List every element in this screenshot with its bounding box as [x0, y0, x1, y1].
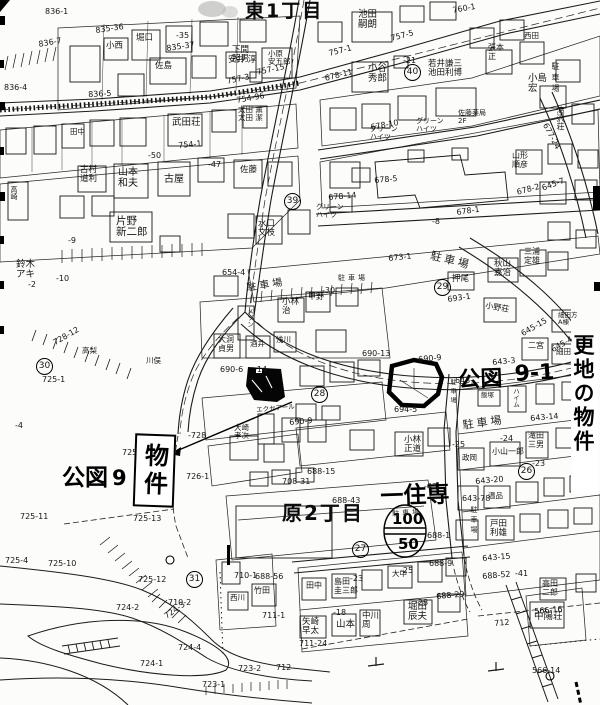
parking-label: 駐車場: [338, 275, 368, 283]
name-label: 川俣: [146, 357, 161, 365]
handwritten-note: 公図: [62, 466, 108, 491]
parcel-number-label: 678-11: [324, 68, 354, 83]
name-label: 飯塚: [481, 392, 494, 399]
parcel-number-label: 643-3: [492, 357, 516, 368]
parcel-number-label: 725-11: [20, 513, 48, 522]
parcel-number-label: 757-1: [328, 44, 353, 58]
parcel-number-label: 678-1: [456, 206, 480, 218]
name-label: 小林 治: [282, 298, 299, 316]
circled-number: 30: [36, 358, 53, 375]
name-label: 小西: [106, 42, 123, 51]
parcel-number-label: -18: [333, 609, 346, 618]
parcel-number-label: -43: [424, 483, 437, 492]
parcel-number-label: 643-14: [530, 413, 559, 424]
parcel-number-label: 688-1: [427, 532, 450, 541]
circled-number: 31: [186, 571, 203, 588]
parcel-number-label: 645-15: [520, 317, 549, 339]
parcel-number-label: 724-1: [140, 660, 163, 669]
name-label: エクセアール: [256, 404, 295, 414]
name-label: ハイム: [512, 388, 519, 408]
parcel-number-label: 723-1: [202, 681, 225, 690]
name-label: 滝沢荘: [556, 106, 564, 130]
name-label: 二宮: [528, 342, 544, 351]
property-box-text: 物件: [136, 442, 173, 499]
parcel-number-label: 708-31: [282, 478, 310, 487]
name-label: 田中: [70, 128, 85, 136]
parcel-number-label: -728: [188, 432, 206, 441]
name-label: 堀田 辰夫: [408, 602, 427, 623]
name-label: 高田 二郎: [542, 580, 558, 597]
name-label: 小谷 秀郎: [368, 64, 387, 85]
parcel-number-label: 654-4: [222, 269, 245, 278]
name-label: 島田 圭三郎: [334, 578, 358, 595]
name-label: 佐藤薬局 2F: [458, 110, 486, 125]
parcel-number-label: 725-13: [133, 515, 161, 524]
name-label: 鈴木 アキ: [16, 260, 35, 281]
parcel-number-label: 690-9: [289, 417, 313, 428]
name-label: 中川 周: [362, 612, 379, 630]
map-labels: 東1丁目原2丁目公図9 -公図9-1一住専10050駐車場駐車場駐車場駐車場駐車…: [0, 0, 600, 705]
parcel-number-label: -41: [515, 570, 528, 579]
parcel-number-label: 712: [494, 619, 510, 629]
margin-note-vacant-lot: 更地の物件: [572, 334, 598, 494]
name-label: 矢崎 早太: [302, 618, 319, 636]
name-label: 竹田: [254, 587, 270, 596]
parcel-number-label: 757-5: [390, 29, 415, 43]
name-label: 山本 和夫: [118, 168, 138, 190]
parcel-number-label: 688-43: [332, 497, 360, 506]
name-label: グリーン ハイツ: [416, 118, 444, 133]
parcel-number-label: 724-4: [178, 644, 201, 653]
parcel-number-label: 836-4: [4, 84, 27, 93]
name-label: 政岡: [462, 454, 477, 462]
name-label: グリーン ハイツ: [316, 204, 344, 219]
parking-label: 駐車場: [246, 278, 286, 295]
parcel-number-label: 725-4: [5, 557, 28, 566]
parcel-number-label: 724-3: [163, 601, 187, 621]
parcel-number-label: 678-2: [516, 183, 541, 197]
parcel-number-label: 690-13: [362, 350, 390, 359]
name-label: 田中: [306, 582, 322, 591]
parcel-number-label: 643-15: [482, 553, 511, 564]
parcel-number-label: 693-1: [447, 293, 471, 305]
name-label: 武田荘: [172, 118, 201, 128]
circled-number: 40: [404, 64, 421, 81]
parcel-number-label: 754-1: [178, 140, 202, 151]
parcel-number-label: 835-36: [95, 23, 124, 35]
parcel-number-label: -25: [452, 441, 465, 450]
parcel-number-label: 757-3: [226, 73, 251, 86]
parcel-number-label: -8: [432, 218, 440, 227]
name-label: 高崎: [10, 186, 17, 200]
parcel-number-label: 688-9: [429, 560, 452, 569]
parcel-number-label: 711-24: [299, 640, 327, 649]
parcel-number-label: 643-20: [475, 476, 504, 487]
name-label: 戸田 利雄: [490, 520, 507, 538]
name-label: 西田: [524, 32, 539, 40]
parcel-number-label: 643-78: [462, 495, 490, 504]
parcel-number-label: 760-1: [452, 3, 476, 16]
name-label: 大崎 孝次: [234, 424, 249, 440]
parcel-number-label: -14: [254, 366, 267, 375]
parcel-number-label: -24: [500, 435, 513, 444]
parcel-number-label: -10: [56, 275, 69, 284]
circled-number: 27: [352, 541, 369, 558]
name-label: 古村 道利: [80, 166, 97, 184]
circled-number: 29: [434, 279, 451, 296]
parcel-number-label: 690-9: [418, 354, 442, 365]
name-label: 高梨: [82, 347, 97, 355]
parcel-number-label: -35: [176, 32, 189, 41]
parcel-number-label: 724-2: [116, 604, 139, 613]
parking-label: 駐車場: [429, 250, 473, 272]
name-label: 片野 新二郎: [116, 216, 148, 239]
name-label: 山本: [336, 620, 355, 630]
parcel-number-label: 688-56: [255, 573, 283, 582]
name-label: 小林 正道: [404, 436, 421, 454]
name-label: 張本 正: [488, 44, 504, 61]
name-label: 小山一郎: [492, 448, 524, 457]
parcel-number-label: 690-6: [220, 366, 243, 375]
name-label: 大洞 貞男: [218, 336, 234, 353]
parcel-number-label: 694-5: [394, 406, 417, 415]
name-label: 滝田 三男: [528, 432, 544, 449]
property-box-annotation: 物件: [133, 433, 177, 507]
name-label: 押尾: [452, 275, 469, 284]
parcel-number-label: 673-1: [388, 253, 412, 264]
name-label: 三浦 定雄: [524, 248, 540, 265]
name-label: 小原 安五郎: [268, 50, 291, 66]
parking-label: 駐車場: [551, 62, 559, 95]
district-label: 東1丁目: [245, 1, 323, 22]
parcel-number-label: 754-96: [236, 92, 265, 105]
name-label: メゾン: [246, 308, 253, 328]
parcel-number-label: 726-1: [186, 473, 209, 482]
name-label: 西川: [230, 594, 245, 602]
name-label: 秋山 嘉治: [494, 260, 511, 278]
parcel-number-label: -9: [68, 237, 76, 246]
parcel-number-label: 725-1: [42, 376, 65, 385]
name-label: 小島 宏: [528, 74, 547, 95]
parking-label: 駐車場: [462, 414, 505, 432]
name-label: 細田方 A棟: [558, 312, 578, 326]
parcel-number-label: -4: [15, 422, 23, 431]
name-label: グリーン ハイツ: [370, 126, 398, 141]
handwritten-note: 50: [398, 536, 419, 552]
parcel-number-label: 643-: [455, 377, 473, 386]
parcel-number-label: 678-14: [328, 192, 357, 203]
parcel-number-label: 835-37: [166, 41, 195, 53]
parcel-number-label: -21: [403, 57, 416, 66]
parking-label: 駐車場: [470, 506, 477, 536]
parcel-number-label: -47: [208, 161, 221, 170]
name-label: 大中: [392, 570, 407, 578]
parcel-number-label: 836-1: [45, 8, 68, 17]
name-label: 下間 照男: [232, 46, 249, 64]
name-label: 池田 嗣朗: [358, 10, 377, 31]
parcel-number-label: 711-1: [262, 612, 285, 621]
cadastral-map: 東1丁目原2丁目公図9 -公図9-1一住専10050駐車場駐車場駐車場駐車場駐車…: [0, 0, 600, 705]
parcel-number-label: 712: [276, 664, 291, 673]
name-label: 甲野: [308, 293, 324, 302]
parcel-number-label: 645-7: [541, 177, 566, 193]
parcel-number-label: -50: [148, 152, 161, 161]
parcel-number-label: 688-52: [482, 571, 511, 582]
name-label: 中陽荘: [534, 612, 563, 622]
parcel-number-label: 836-7: [38, 37, 62, 50]
name-label: 太田 薫 太田 潔: [238, 106, 263, 122]
name-label: 古屋: [164, 175, 184, 186]
parcel-number-label: 710-1: [234, 572, 257, 581]
parcel-number-label: 688-29: [436, 591, 465, 602]
name-label: 佐藤: [240, 166, 257, 175]
parcel-number-label: -2: [28, 281, 36, 290]
parcel-number-label: 688-15: [307, 468, 335, 477]
name-label: 若井謙三 池田利博: [428, 60, 462, 78]
parcel-number-label: 725-10: [48, 560, 76, 569]
parcel-number-label: 725-12: [138, 576, 166, 585]
parcel-number-label: -23: [532, 460, 545, 469]
circled-number: 39: [284, 193, 301, 210]
name-label: 堀口: [136, 34, 153, 43]
district-label: 原2丁目: [282, 503, 364, 525]
name-label: 山形 順彦: [512, 152, 528, 169]
name-label: 佐島: [155, 62, 172, 71]
name-label: 酒井: [250, 340, 265, 348]
handwritten-note: 9-1: [514, 361, 555, 387]
parcel-number-label: 678-5: [374, 175, 398, 186]
circled-number: 28: [311, 386, 328, 403]
parcel-number-label: 836-5: [88, 90, 112, 100]
parcel-number-label: 723-2: [238, 665, 261, 674]
name-label: 温品: [488, 492, 503, 500]
handwritten-note: 一住専: [380, 483, 450, 510]
name-label: 浅川: [276, 336, 291, 344]
name-label: 水口 文枝: [258, 220, 275, 238]
parcel-number-label: 728-12: [52, 326, 81, 348]
name-label: 小野荘: [485, 302, 510, 315]
parcel-number-label: 566-14: [532, 667, 560, 676]
